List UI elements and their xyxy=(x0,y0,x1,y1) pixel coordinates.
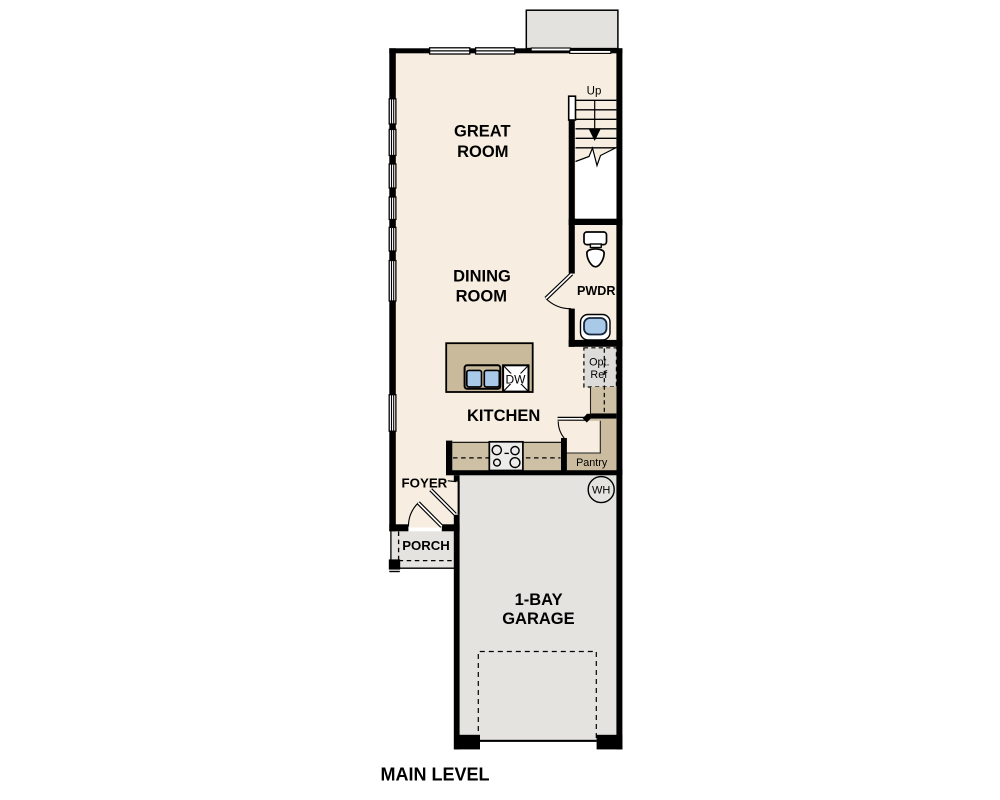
svg-text:Ref: Ref xyxy=(590,369,608,381)
svg-text:1-BAY: 1-BAY xyxy=(515,591,563,609)
svg-text:Opt.: Opt. xyxy=(589,356,609,368)
svg-text:PORCH: PORCH xyxy=(402,538,450,553)
svg-text:FOYER: FOYER xyxy=(401,476,447,491)
svg-text:Pantry: Pantry xyxy=(576,457,608,469)
svg-text:GREAT: GREAT xyxy=(454,123,511,141)
svg-text:Up: Up xyxy=(587,86,602,98)
svg-text:DINING: DINING xyxy=(453,268,511,286)
svg-text:GARAGE: GARAGE xyxy=(502,610,574,628)
svg-text:DW: DW xyxy=(506,373,527,387)
svg-text:WH: WH xyxy=(592,485,610,497)
svg-text:PWDR: PWDR xyxy=(577,284,615,298)
svg-text:ROOM: ROOM xyxy=(456,288,507,306)
svg-text:KITCHEN: KITCHEN xyxy=(467,407,540,425)
svg-text:ROOM: ROOM xyxy=(457,143,508,161)
svg-text:MAIN LEVEL: MAIN LEVEL xyxy=(380,765,489,785)
